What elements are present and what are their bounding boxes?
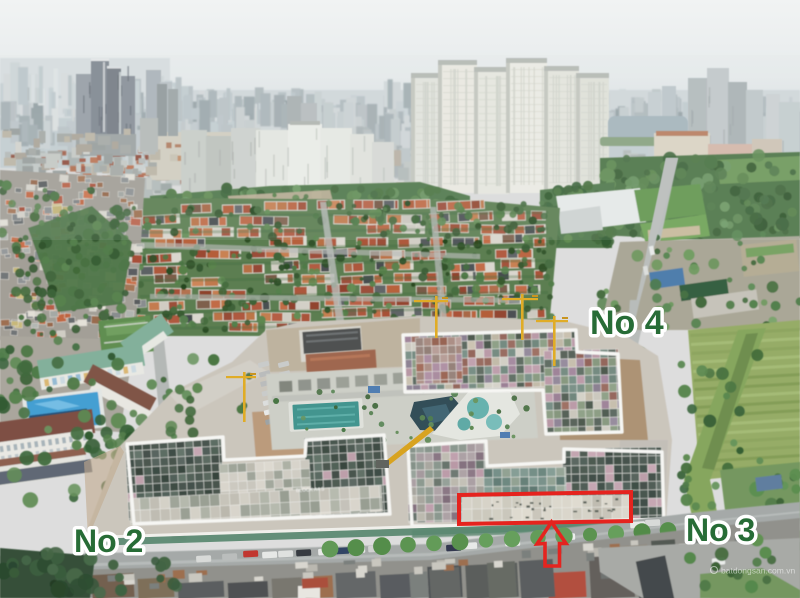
svg-text:batdongsan.com.vn: batdongsan.com.vn — [721, 566, 795, 576]
svg-text:No 4: No 4 — [590, 304, 664, 342]
svg-text:No 3: No 3 — [686, 512, 755, 548]
svg-text:No 2: No 2 — [74, 523, 143, 559]
